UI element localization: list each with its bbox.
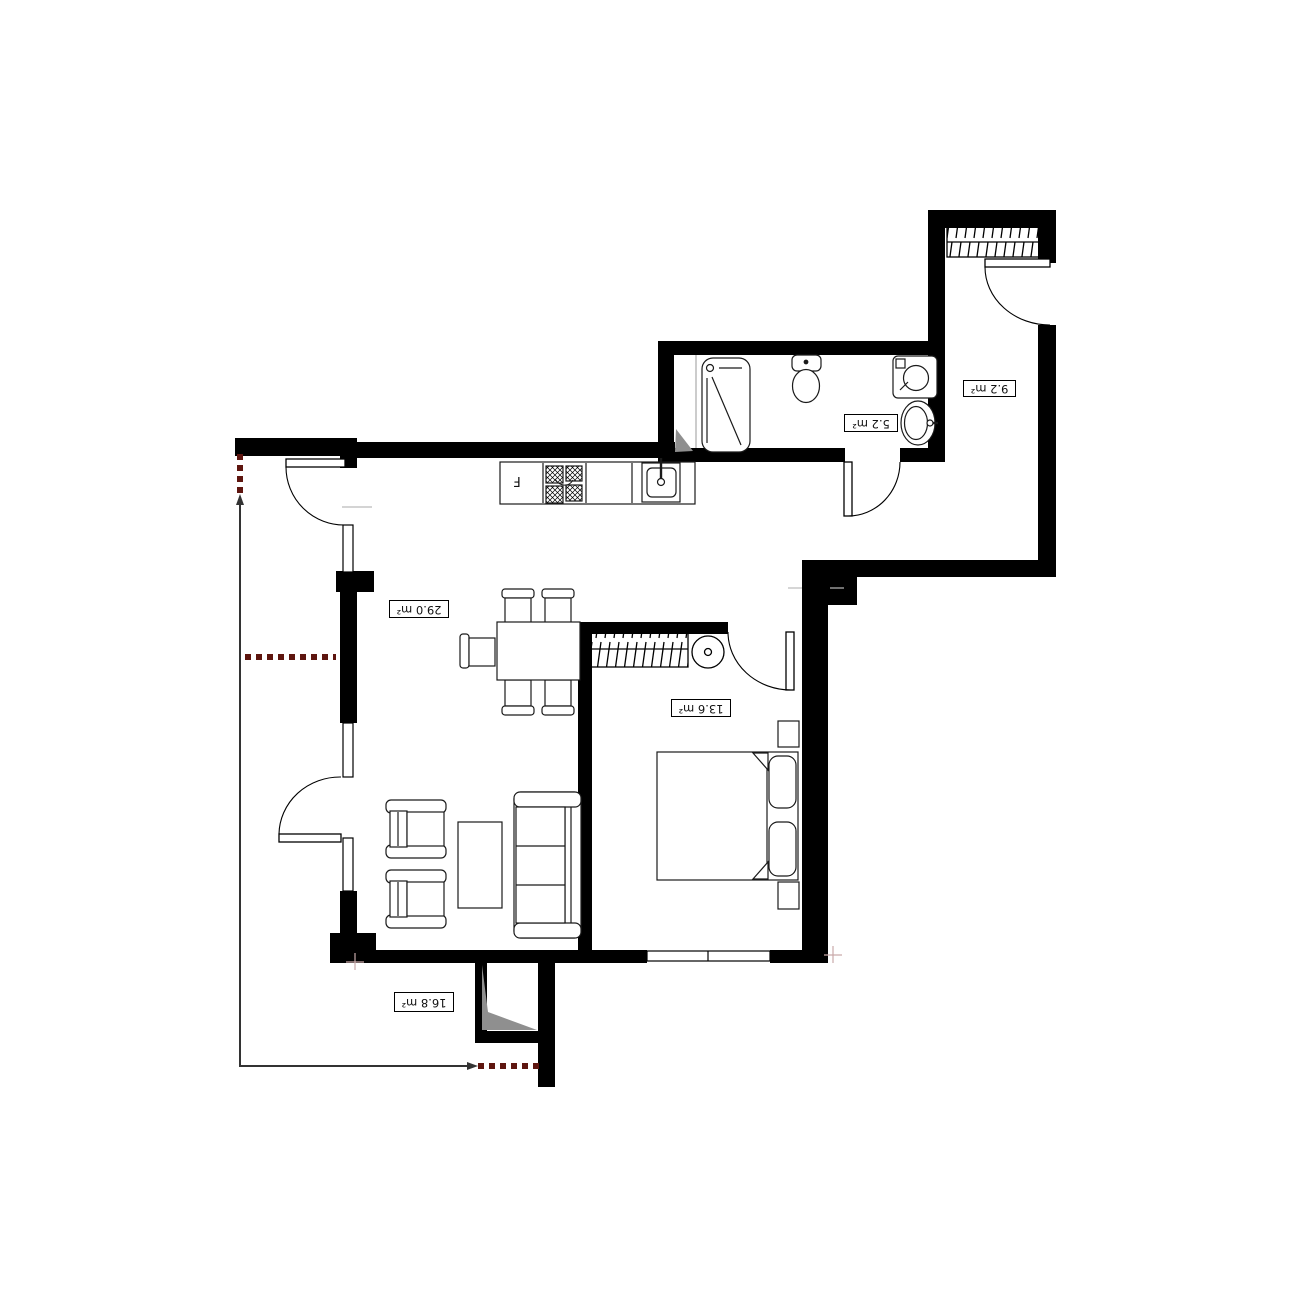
dining-chair <box>502 589 534 624</box>
window-left-3 <box>343 838 353 891</box>
coffee-table <box>458 822 502 908</box>
sofa <box>514 792 581 938</box>
wardrobe-bedroom <box>588 631 688 667</box>
boundary-arrow-up <box>236 494 244 505</box>
dining-chair <box>542 589 574 624</box>
armchair <box>386 870 446 928</box>
window-left-1 <box>343 525 353 572</box>
room-label-terrace: 16.8 m² <box>394 992 454 1012</box>
terrace-boundary <box>236 454 539 1070</box>
boundary-arrow-right <box>467 1062 478 1070</box>
window-left-2 <box>343 723 353 777</box>
toilet <box>792 355 821 403</box>
room-label-hall: 9.2 m² <box>963 380 1016 397</box>
nightstand <box>778 721 799 747</box>
room-label-living: 29.0 m² <box>389 600 449 618</box>
pillow <box>769 756 796 808</box>
niche-shade <box>482 965 537 1030</box>
washing-machine <box>893 356 937 398</box>
pillow <box>769 822 796 876</box>
terrace-door-upper <box>286 459 345 525</box>
dining-chair <box>502 680 534 715</box>
nightstand <box>778 882 799 909</box>
floor-plan-svg <box>0 0 1300 1300</box>
kitchen-sink <box>642 458 680 502</box>
coat-rack-hall <box>947 227 1040 257</box>
duct-shade <box>675 429 693 452</box>
dining-set <box>460 589 580 715</box>
dimension-ticks <box>342 507 844 588</box>
shower <box>702 358 750 452</box>
terrace-door-lower <box>279 777 341 842</box>
bed <box>657 752 798 880</box>
fridge-label: F <box>508 473 526 489</box>
entry-door <box>985 259 1050 325</box>
dining-chair <box>460 634 495 668</box>
floor-plan: 29.0 m² 13.6 m² 16.8 m² 9.2 m² 5.2 m² F <box>0 0 1300 1300</box>
room-label-bathroom: 5.2 m² <box>844 414 898 432</box>
dining-chair <box>542 680 574 715</box>
bathroom-door <box>844 462 900 516</box>
dining-table <box>497 622 580 680</box>
armchair <box>386 800 446 858</box>
room-label-bedroom: 13.6 m² <box>671 699 731 717</box>
ceiling-lamp <box>692 636 724 668</box>
kitchen <box>500 458 695 504</box>
bedroom-door <box>728 632 794 690</box>
